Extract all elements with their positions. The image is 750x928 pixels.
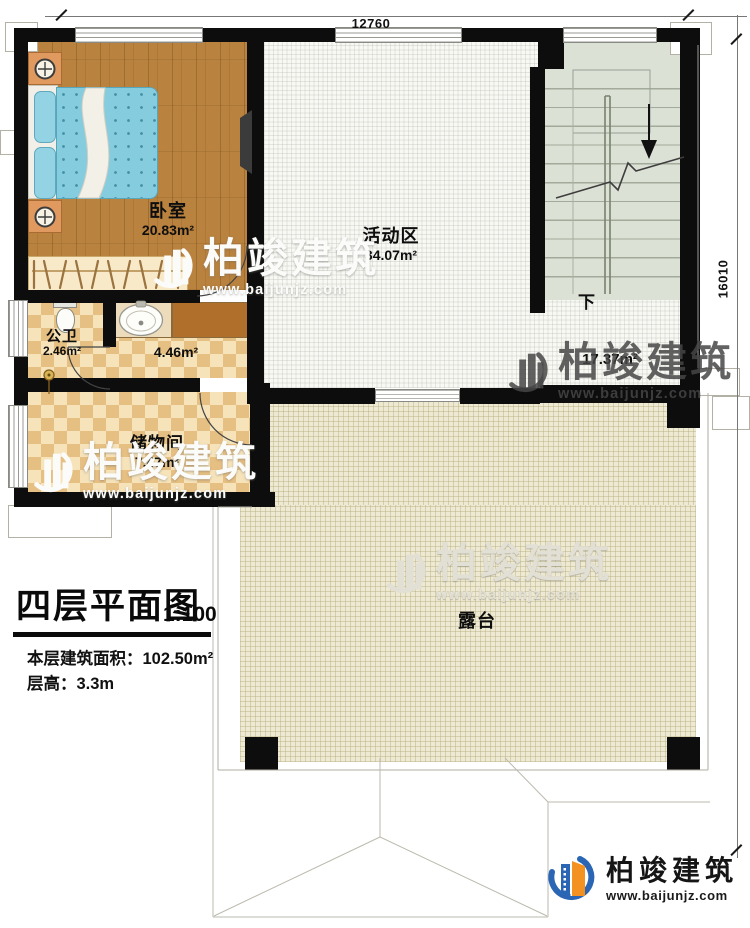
drawing-scale: 1:100 xyxy=(163,604,217,625)
wall xyxy=(14,357,28,405)
column-outline xyxy=(697,368,740,396)
dimension-right-value: 16010 xyxy=(716,260,731,299)
window xyxy=(563,27,657,43)
room-label-corridor: 4.46m² xyxy=(154,344,198,360)
stair-treads xyxy=(545,88,680,295)
wall xyxy=(28,378,200,392)
room-label-stair-hall: 17.37m² xyxy=(582,351,638,368)
wall xyxy=(460,388,540,404)
wall xyxy=(667,403,700,428)
wall xyxy=(247,42,264,388)
window xyxy=(75,27,203,43)
company-logo: 柏竣建筑 www.baijunjz.com xyxy=(542,850,738,910)
bed xyxy=(56,87,158,199)
company-website: www.baijunjz.com xyxy=(606,888,738,903)
wall xyxy=(103,302,116,347)
wardrobe xyxy=(28,256,188,292)
floor-plan-canvas: 卧室 20.83m² 活动区 34.07m² 公卫 2.46m² 4.46m² … xyxy=(0,0,750,928)
vanity-counter xyxy=(108,302,172,338)
title-underline xyxy=(13,632,211,637)
room-label-activity: 活动区 34.07m² xyxy=(363,226,420,263)
stair-direction-label: 下 xyxy=(578,293,596,313)
terrace-pillar xyxy=(245,737,278,770)
wall xyxy=(680,28,700,403)
sliding-door xyxy=(375,389,460,402)
room-label-bedroom: 卧室 20.83m² xyxy=(142,201,194,238)
dimension-line-right xyxy=(737,15,738,858)
column-outline xyxy=(712,396,750,430)
nightstand xyxy=(28,52,62,85)
dimension-line-top xyxy=(45,16,747,17)
nightstand xyxy=(28,200,62,233)
pillow xyxy=(34,147,56,199)
wall xyxy=(14,492,275,507)
terrace-pillar xyxy=(667,737,700,770)
wall xyxy=(540,385,700,403)
column-outline xyxy=(8,505,112,538)
wall xyxy=(14,28,75,42)
room-label-storage: 储物间 7.47m² xyxy=(130,434,184,470)
company-name: 柏竣建筑 xyxy=(606,857,738,885)
dimension-top-value: 12760 xyxy=(352,16,391,31)
room-label-bathroom: 公卫 2.46m² xyxy=(43,328,81,359)
wall xyxy=(538,40,564,69)
room-label-terrace: 露台 xyxy=(458,611,496,632)
wall xyxy=(14,42,28,300)
wall xyxy=(530,67,545,313)
terrace-floor xyxy=(268,400,696,507)
floor-height-note: 层高：3.3m xyxy=(27,676,114,693)
terrace-floor xyxy=(240,505,696,762)
pillow xyxy=(34,91,56,143)
vanity-counter-wood xyxy=(172,302,250,338)
window xyxy=(8,300,28,357)
company-logo-icon xyxy=(542,850,598,910)
wall xyxy=(203,28,335,42)
wall xyxy=(250,383,270,507)
window xyxy=(8,405,28,488)
floor-area-note: 本层建筑面积：102.50m² xyxy=(27,651,213,668)
